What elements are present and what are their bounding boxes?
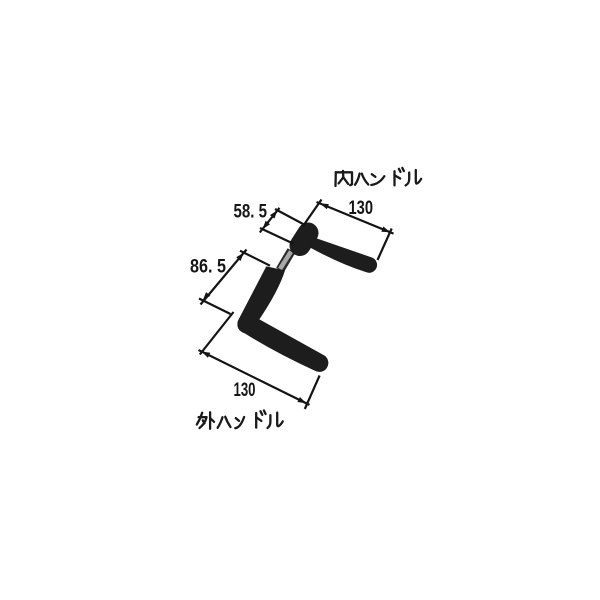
svg-text:130: 130 xyxy=(234,379,256,401)
svg-text:130: 130 xyxy=(349,197,374,219)
svg-text:58. 5: 58. 5 xyxy=(234,201,268,223)
svg-text:86. 5: 86. 5 xyxy=(190,256,226,278)
